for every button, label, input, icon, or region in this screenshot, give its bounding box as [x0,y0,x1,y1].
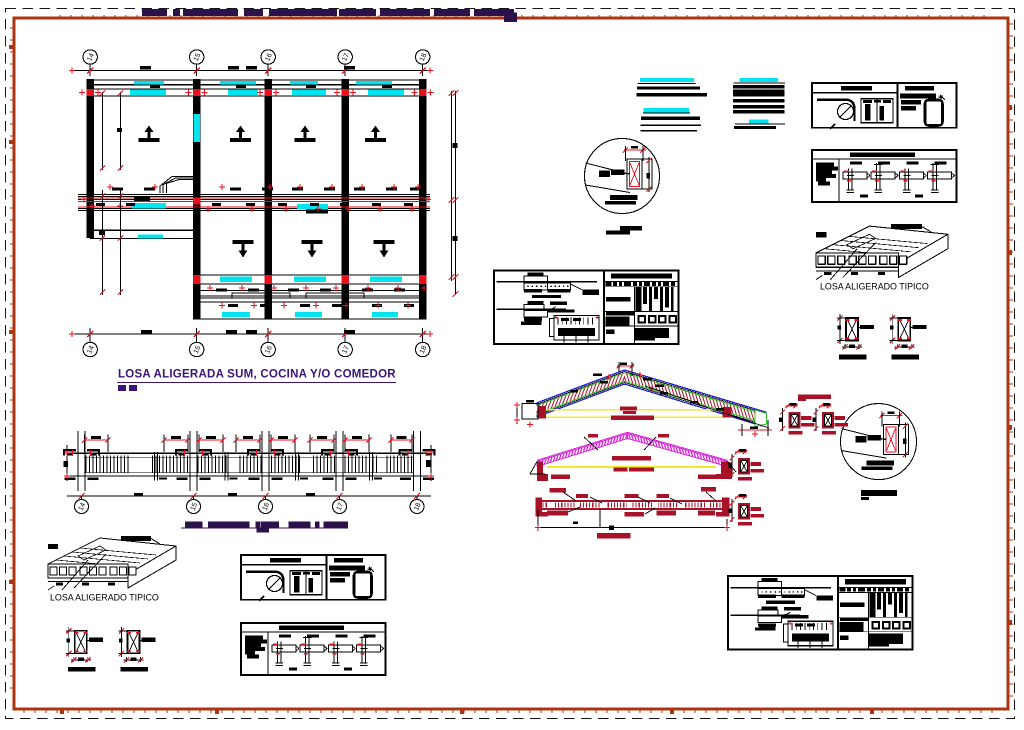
svg-text:LOSA ALIGERADA SUM, COCINA Y: LOSA ALIGERADA SUM, COCINA Y/O COMEDOR [118,369,396,381]
svg-text:LOSA ALIGERADO TIPICO: LOSA ALIGERADO TIPICO [50,593,159,603]
svg-text:LOSA ALIGERADO TIPICO: LOSA ALIGERADO TIPICO [820,282,929,292]
